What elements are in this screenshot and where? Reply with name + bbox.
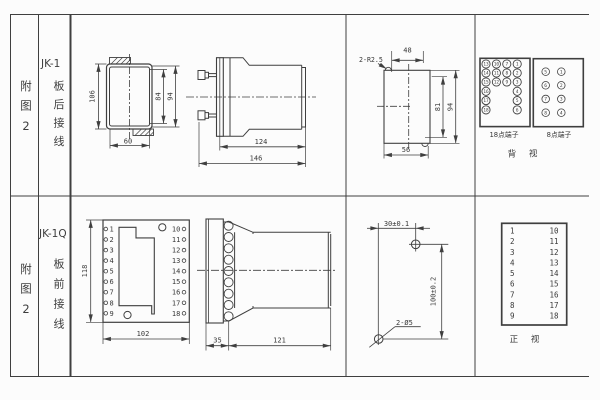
label-18pt: 18点端子 <box>489 130 518 139</box>
svg-text:16: 16 <box>172 289 180 297</box>
row2-wiring-label: 板前接线 <box>50 258 66 338</box>
svg-text:15: 15 <box>172 278 180 286</box>
svg-text:5: 5 <box>516 98 519 104</box>
svg-text:15: 15 <box>483 80 489 86</box>
svg-text:10: 10 <box>172 226 180 234</box>
svg-text:2: 2 <box>516 71 519 77</box>
dim-84: 84 <box>155 92 163 100</box>
svg-text:15: 15 <box>549 280 558 289</box>
svg-text:8: 8 <box>510 301 515 310</box>
svg-text:1: 1 <box>110 226 114 234</box>
dim-100: 100±0.2 <box>430 277 438 307</box>
svg-text:18: 18 <box>549 312 559 321</box>
jk1q-side-view <box>197 219 335 351</box>
svg-text:2: 2 <box>510 237 515 246</box>
jk1-side-view <box>186 58 316 167</box>
svg-text:3: 3 <box>560 97 563 103</box>
svg-text:10: 10 <box>549 227 559 236</box>
svg-text:17: 17 <box>172 299 180 307</box>
svg-text:9: 9 <box>505 80 508 86</box>
figure-page: 106 84 94 60 124 146 2-R2.5 48 81 94 <box>0 0 600 400</box>
dim-94: 94 <box>167 92 175 100</box>
row1-model-label: JK-1 <box>41 58 60 70</box>
svg-text:1: 1 <box>560 69 563 75</box>
dim-106: 106 <box>89 90 97 103</box>
svg-text:3: 3 <box>110 247 114 255</box>
svg-text:4: 4 <box>510 258 515 267</box>
svg-text:4: 4 <box>560 110 563 116</box>
svg-text:18: 18 <box>172 310 180 318</box>
svg-text:9: 9 <box>110 310 114 318</box>
front-view-table-numbers: 123456789 101112131415161718 <box>510 227 559 321</box>
dim-35: 35 <box>213 336 221 344</box>
dim-30: 30±0.1 <box>384 220 409 228</box>
svg-text:13: 13 <box>172 257 180 265</box>
svg-text:12: 12 <box>172 247 180 255</box>
rear-view-caption: 背 视 <box>508 149 543 160</box>
svg-text:18: 18 <box>483 108 489 114</box>
svg-text:4: 4 <box>110 257 114 265</box>
dim-146: 146 <box>250 155 263 163</box>
svg-text:17: 17 <box>483 98 489 104</box>
svg-text:16: 16 <box>483 89 489 95</box>
svg-text:7: 7 <box>544 97 547 103</box>
svg-text:3: 3 <box>516 80 519 86</box>
svg-text:12: 12 <box>494 80 500 86</box>
dim-121: 121 <box>273 336 286 344</box>
drill-note: 2-Ø5 <box>396 319 413 327</box>
svg-text:9: 9 <box>510 312 515 321</box>
svg-text:7: 7 <box>110 289 114 297</box>
svg-text:11: 11 <box>172 236 180 244</box>
front-view-caption: 正 视 <box>510 334 545 345</box>
svg-text:13: 13 <box>483 62 489 68</box>
svg-text:16: 16 <box>549 290 559 299</box>
svg-text:8: 8 <box>110 299 114 307</box>
svg-text:10: 10 <box>494 62 500 68</box>
row1-figure-label: 附图2 <box>18 80 34 141</box>
svg-text:5: 5 <box>110 268 114 276</box>
svg-text:5: 5 <box>544 69 547 75</box>
svg-text:14: 14 <box>172 268 180 276</box>
dim-60: 60 <box>124 138 132 146</box>
dim-81: 81 <box>434 103 442 111</box>
label-8pt: 8点端子 <box>547 130 572 139</box>
svg-text:14: 14 <box>483 71 489 77</box>
row2-model-label: JK-1Q <box>39 228 67 240</box>
row1-wiring-label: 板后接线 <box>50 80 66 154</box>
svg-text:5: 5 <box>510 269 515 278</box>
svg-text:1: 1 <box>510 227 515 236</box>
svg-text:11: 11 <box>494 71 500 77</box>
svg-text:1: 1 <box>516 62 519 68</box>
drawing-layer: 106 84 94 60 124 146 2-R2.5 48 81 94 <box>0 0 600 400</box>
dim-56: 56 <box>402 146 410 154</box>
svg-text:2: 2 <box>560 83 563 89</box>
svg-text:7: 7 <box>510 290 515 299</box>
dim-94b: 94 <box>447 103 455 111</box>
svg-text:6: 6 <box>110 278 114 286</box>
svg-text:14: 14 <box>549 269 559 278</box>
svg-text:2: 2 <box>110 236 114 244</box>
cutout-note: 2-R2.5 <box>359 56 383 64</box>
dim-102: 102 <box>137 330 150 338</box>
svg-text:6: 6 <box>510 280 515 289</box>
svg-text:11: 11 <box>549 237 558 246</box>
svg-text:8: 8 <box>544 110 547 116</box>
svg-text:13: 13 <box>549 258 558 267</box>
dim-48: 48 <box>403 47 411 55</box>
jk1q-panel-terminal-numbers: 123456789 101112131415161718 <box>110 226 181 318</box>
svg-text:3: 3 <box>510 248 515 257</box>
svg-text:8: 8 <box>505 71 508 77</box>
row2-figure-label: 附图2 <box>18 263 34 324</box>
svg-text:17: 17 <box>549 301 558 310</box>
svg-text:6: 6 <box>516 108 519 114</box>
svg-text:7: 7 <box>505 62 508 68</box>
dim-124: 124 <box>255 138 268 146</box>
svg-text:6: 6 <box>544 83 547 89</box>
rear-view-8pt-block <box>533 59 583 127</box>
svg-text:4: 4 <box>516 89 519 95</box>
dim-118: 118 <box>81 265 89 278</box>
svg-text:12: 12 <box>549 248 558 257</box>
